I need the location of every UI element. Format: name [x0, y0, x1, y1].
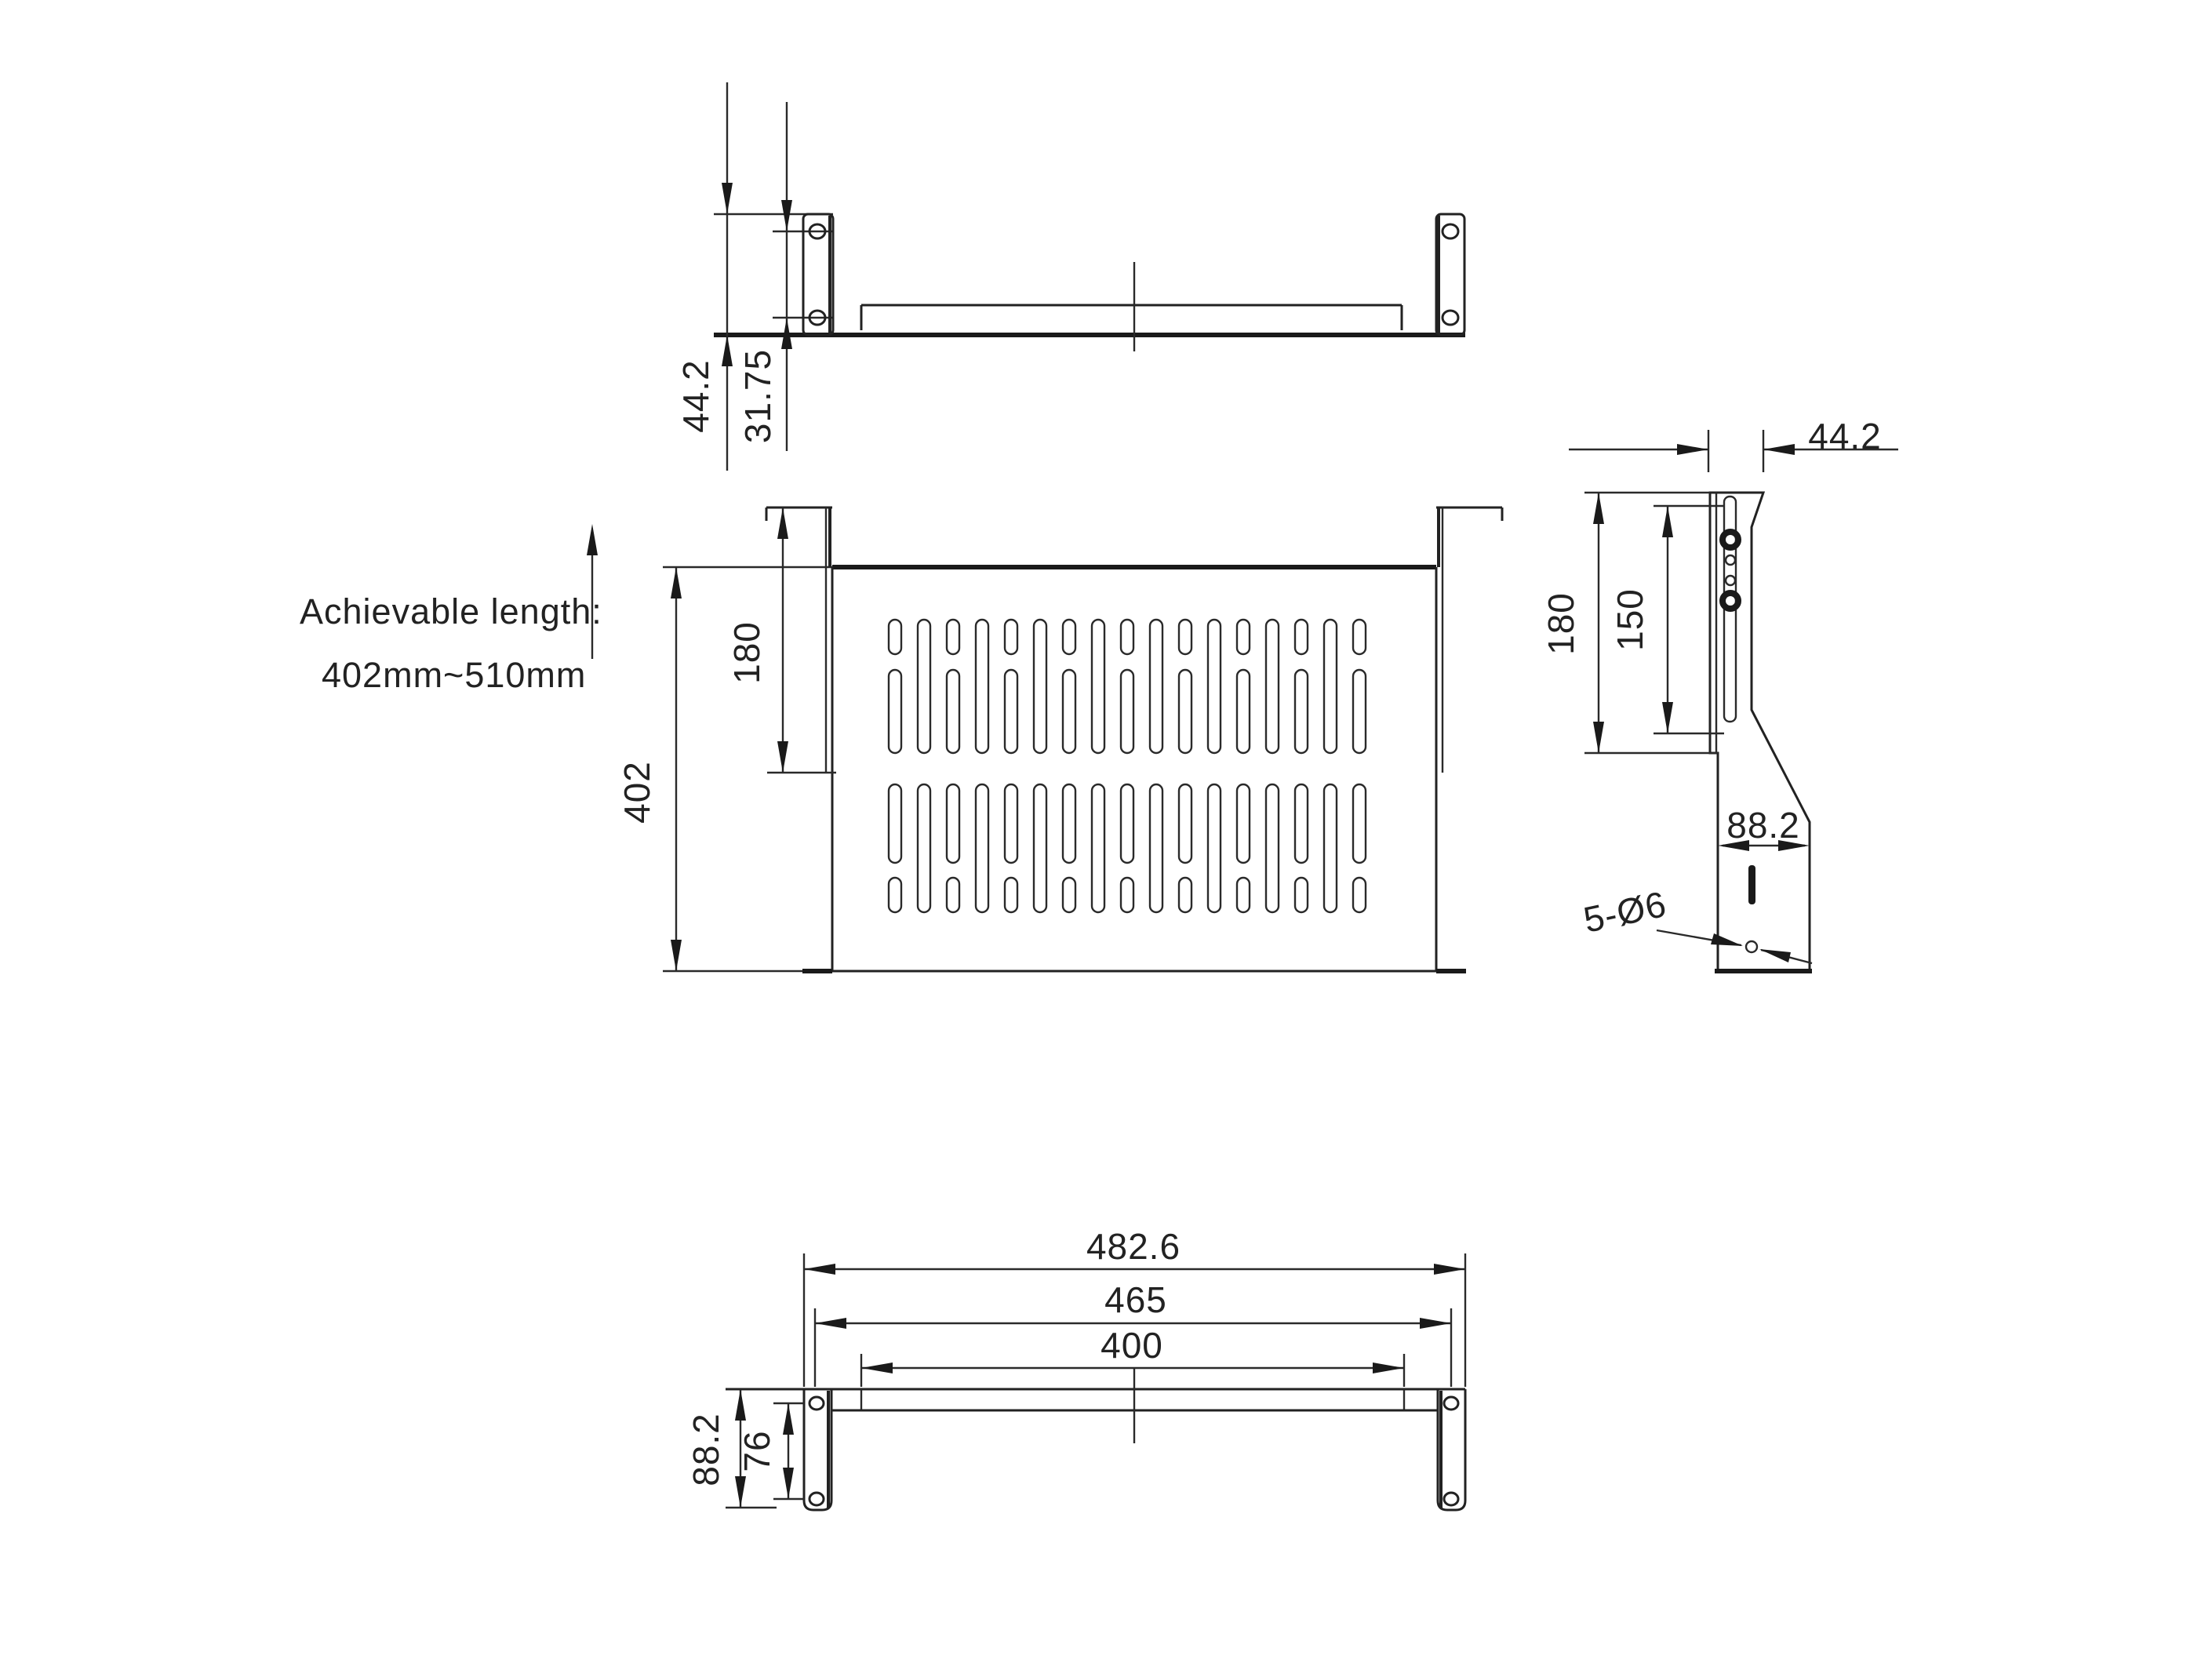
plan-view: 402 180: [617, 508, 1502, 971]
vent-slot: [1121, 620, 1133, 654]
vent-slot: [1324, 784, 1337, 912]
dim-front-overall-height: 44.2: [675, 359, 716, 433]
vent-slot: [976, 784, 988, 912]
arrowhead-icon: [1763, 444, 1795, 455]
vent-slot: [1005, 784, 1017, 863]
vent-slot: [1121, 878, 1133, 912]
vent-slot: [1295, 620, 1308, 654]
vent-slot: [889, 784, 901, 863]
arrowhead-icon: [783, 1468, 794, 1499]
arrowhead-icon: [722, 183, 733, 214]
arrowhead-icon: [1662, 702, 1673, 733]
vent-slot: [1237, 878, 1250, 912]
vent-slot: [1179, 784, 1191, 863]
bottom-view: 482.6 465 400: [686, 1226, 1465, 1510]
dim-bottom-mounting-width: 465: [1104, 1279, 1167, 1320]
engineering-drawing: 44.2 31.75 Achievable length: 402mm~510m…: [0, 0, 2212, 1659]
vent-slot: [1005, 670, 1017, 753]
vent-slot: [1237, 620, 1250, 654]
arrowhead-icon: [1593, 493, 1604, 524]
vent-slot: [1150, 620, 1162, 753]
arrowhead-icon: [1420, 1318, 1451, 1329]
vent-slot: [947, 620, 959, 654]
vent-slot: [1005, 878, 1017, 912]
arrowhead-icon: [783, 1403, 794, 1435]
up-arrow-icon: [587, 524, 598, 555]
dim-front-hole-spacing: 31.75: [737, 349, 778, 443]
vent-slot: [1324, 620, 1337, 753]
vent-slot: [947, 878, 959, 912]
vent-slot: [1353, 620, 1366, 654]
dim-side-bottom-width: 88.2: [1726, 805, 1800, 846]
vent-slot: [1063, 620, 1075, 654]
note-line1: Achievable length:: [300, 591, 602, 631]
arrowhead-icon: [777, 508, 788, 539]
arrowhead-icon: [722, 335, 733, 366]
vent-slot: [1063, 784, 1075, 863]
arrowhead-icon: [671, 940, 682, 971]
vent-slot: [1034, 620, 1046, 753]
dim-side-slot-length: 150: [1610, 588, 1650, 651]
vent-slot: [889, 878, 901, 912]
dim-plan-overall-depth: 402: [617, 761, 657, 824]
vent-slot: [976, 620, 988, 753]
arrowhead-icon: [735, 1389, 746, 1421]
vent-slot: [1266, 620, 1279, 753]
dim-bottom-overall-width: 482.6: [1086, 1226, 1181, 1267]
arrowhead-icon: [1677, 444, 1708, 455]
vent-slot: [947, 670, 959, 753]
vent-slot: [1208, 620, 1221, 753]
arrowhead-icon: [861, 1362, 893, 1373]
arrowhead-icon: [1662, 506, 1673, 537]
dim-side-bracket-depth: 180: [1541, 592, 1581, 655]
dim-bottom-ear-hole-spacing: 76: [737, 1430, 777, 1472]
achievable-length-note: Achievable length: 402mm~510mm: [300, 524, 602, 695]
vent-slot: [1353, 784, 1366, 863]
front-view: 44.2 31.75: [675, 82, 1465, 471]
arrowhead-icon: [781, 200, 792, 231]
vent-slot: [1121, 670, 1133, 753]
vent-slot: [1266, 784, 1279, 912]
vent-slot: [1092, 784, 1104, 912]
vent-slot: [1179, 670, 1191, 753]
vent-slot: [1179, 620, 1191, 654]
vent-slot: [889, 670, 901, 753]
vent-slot: [1353, 670, 1366, 753]
dim-plan-bracket-depth: 180: [726, 621, 767, 684]
vent-slot-pattern: [889, 620, 1366, 912]
arrowhead-icon: [804, 1264, 835, 1275]
vent-slot: [1295, 784, 1308, 863]
vent-slot: [1295, 878, 1308, 912]
vent-slot: [1295, 670, 1308, 753]
arrowhead-icon: [1373, 1362, 1404, 1373]
vent-slot: [1237, 784, 1250, 863]
vent-slot: [1063, 878, 1075, 912]
arrowhead-icon: [735, 1476, 746, 1508]
vent-slot: [1179, 878, 1191, 912]
vent-slot: [1237, 670, 1250, 753]
leader-arrowhead-icon: [1759, 949, 1791, 962]
arrowhead-icon: [815, 1318, 846, 1329]
dim-side-top-width: 44.2: [1808, 416, 1882, 457]
arrowhead-icon: [671, 567, 682, 598]
vent-slot: [918, 784, 930, 912]
vent-slot: [918, 620, 930, 753]
dim-bottom-inner-width: 400: [1101, 1325, 1163, 1366]
vent-slot: [1034, 784, 1046, 912]
side-view: 44.2 180 150 88.2 5-Ø6: [1541, 416, 1898, 971]
note-line2: 402mm~510mm: [322, 655, 586, 695]
vent-slot: [1005, 620, 1017, 654]
arrowhead-icon: [777, 741, 788, 773]
dim-bottom-ear-height: 88.2: [686, 1413, 726, 1486]
arrowhead-icon: [1434, 1264, 1465, 1275]
dim-side-hole-note: 5-Ø6: [1580, 883, 1670, 940]
vent-slot: [947, 784, 959, 863]
leader-arrowhead-icon: [1711, 933, 1743, 946]
engineering-drawing-page: 44.2 31.75 Achievable length: 402mm~510m…: [0, 0, 2212, 1659]
vent-slot: [1150, 784, 1162, 912]
vent-slot: [1208, 784, 1221, 912]
vent-slot: [1121, 784, 1133, 863]
vent-slot: [1353, 878, 1366, 912]
arrowhead-icon: [1593, 722, 1604, 753]
vent-slot: [1063, 670, 1075, 753]
vent-slot: [889, 620, 901, 654]
vent-slot: [1092, 620, 1104, 753]
